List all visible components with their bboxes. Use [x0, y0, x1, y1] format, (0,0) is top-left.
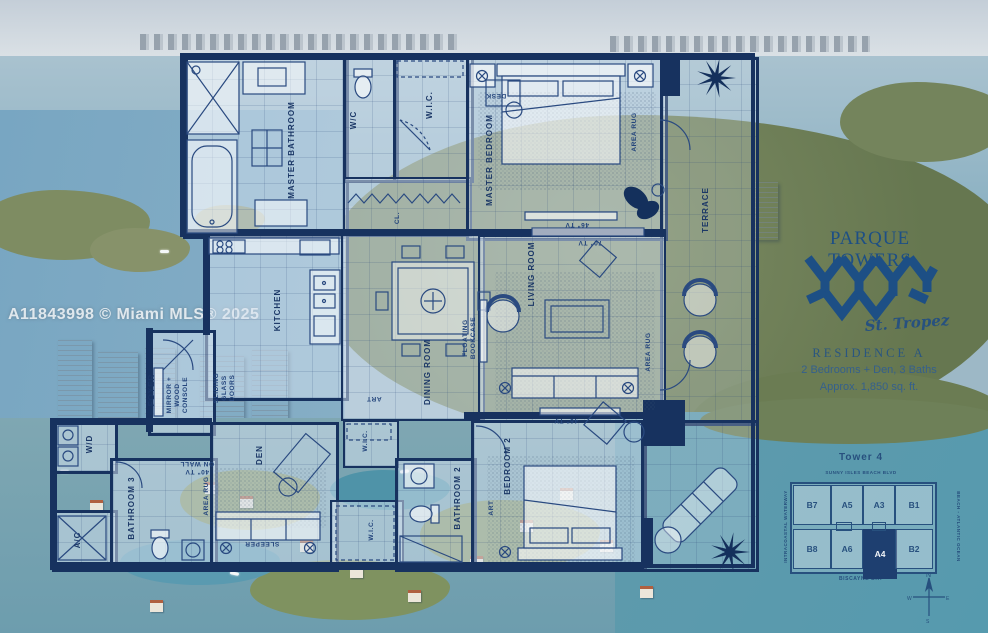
closet-doors: [348, 194, 460, 203]
wc-toilet: [354, 69, 372, 98]
ann-area-rug-den: AREA RUG: [203, 476, 211, 515]
label-wc: W/C: [349, 111, 359, 130]
ann-sliding-doors: SLIDING GLASS DOORS: [213, 373, 237, 404]
ann-tv70: 70" TV: [578, 238, 602, 246]
label-master-bathroom: MASTER BATHROOM: [287, 101, 297, 199]
ann-sleeper: SLEEPER: [245, 539, 280, 547]
bath2-toilet: [410, 505, 439, 523]
keyplan-street-label: SUNNY ISLES BEACH BLVD: [781, 470, 941, 475]
shower: [187, 62, 239, 134]
tower-keyplan: Tower 4 SUNNY ISLES BEACH BLVD INTRACOAS…: [781, 452, 961, 602]
label-living: LIVING ROOM: [527, 242, 537, 307]
compass-w: W: [907, 596, 912, 602]
residence-info: 2 Bedrooms + Den, 3 Baths Approx. 1,850 …: [788, 362, 950, 395]
keyplan-unit-a4-highlighted: A4: [863, 529, 897, 579]
label-wd: W/D: [85, 435, 95, 454]
terrace-chair: [684, 280, 716, 316]
ann-area-rug-living: AREA RUG: [645, 332, 653, 371]
accent-table: [580, 241, 617, 278]
bath3-toilet: [151, 530, 169, 559]
bookcase: [480, 300, 487, 362]
ann-mirror-console: MIRROR + WOOD CONSOLE: [166, 377, 190, 414]
ann-floating-bookcase: FLOATING BOOKCASE: [462, 317, 478, 359]
label-kitchen: KITCHEN: [273, 289, 283, 332]
compass-rose: N E S W: [907, 570, 951, 624]
label-wic-den: W.I.C.: [362, 430, 370, 451]
label-bathroom2: BATHROOM 2: [453, 466, 463, 529]
ann-tv40-wall: 40" TV ON WALL: [180, 459, 214, 475]
master-headboard: [497, 64, 625, 76]
tv-console: [525, 212, 617, 220]
label-den: DEN: [255, 445, 265, 465]
residence-info-line2: Approx. 1,850 sq. ft.: [788, 379, 950, 396]
wic-shelving: [397, 61, 463, 77]
bed2-headboard: [518, 548, 622, 560]
ann-tv46-living: 46" TV: [554, 416, 578, 424]
label-dining: DINING ROOM: [423, 339, 433, 405]
label-closet: CL.: [394, 212, 402, 224]
keyplan-unit-b8: B8: [793, 529, 831, 569]
keyplan-left-label: INTRACOASTAL WATERWAY: [783, 490, 788, 563]
label-wic-master: W.I.C.: [425, 91, 435, 119]
ann-area-rug-master: AREA RUG: [631, 112, 639, 151]
keyplan-unit-b1: B1: [895, 485, 933, 525]
entry-door: [163, 340, 193, 370]
keyplan-unit-a5: A5: [831, 485, 863, 525]
keyplan-title: Tower 4: [781, 452, 941, 463]
vanity: [243, 62, 305, 94]
sofa: [512, 368, 638, 398]
ann-art-bedroom2: ART: [488, 500, 496, 515]
label-bathroom3: BATHROOM 3: [127, 476, 137, 539]
label-foyer: FOYER: [147, 374, 157, 407]
compass-s: S: [926, 619, 930, 624]
keyplan-unit-b7: B7: [793, 485, 831, 525]
label-ac: A/C: [73, 532, 83, 549]
keyplan-unit-a6: A6: [831, 529, 863, 569]
label-master-bedroom: MASTER BEDROOM: [485, 114, 495, 206]
palm-tree-icon-2: [711, 532, 750, 571]
compass-e: E: [946, 596, 950, 602]
keyplan-unit-a3: A3: [863, 485, 895, 525]
residence-info-line1: 2 Bedrooms + Den, 3 Baths: [788, 362, 950, 379]
bed2: [524, 466, 616, 548]
keyplan-outline: B7 A5 A3 B1 B8 A6 A4 B2: [790, 482, 937, 574]
ann-art-dining: ART: [366, 394, 381, 402]
ann-desk: DESK: [486, 91, 506, 99]
ann-tv46-master: 46" TV: [565, 220, 589, 228]
label-wic-bedroom2: W.I.C.: [368, 519, 376, 540]
sleeper-sofa: [216, 512, 320, 540]
compass-n: N: [926, 572, 931, 579]
label-terrace: TERRACE: [701, 187, 711, 233]
keyplan-unit-b2: B2: [895, 529, 933, 569]
palm-tree-icon: [697, 58, 736, 97]
terrace-chair2: [684, 332, 716, 368]
bathtub: [187, 140, 237, 233]
keyplan-right-label: BEACH - ATLANTIC OCEAN: [956, 491, 961, 562]
floorplan-listing-image: A11843998 © Miami MLS® 2025: [0, 0, 988, 633]
label-bedroom2: BEDROOM 2: [503, 437, 513, 494]
residence-title: RESIDENCE A: [798, 346, 940, 361]
